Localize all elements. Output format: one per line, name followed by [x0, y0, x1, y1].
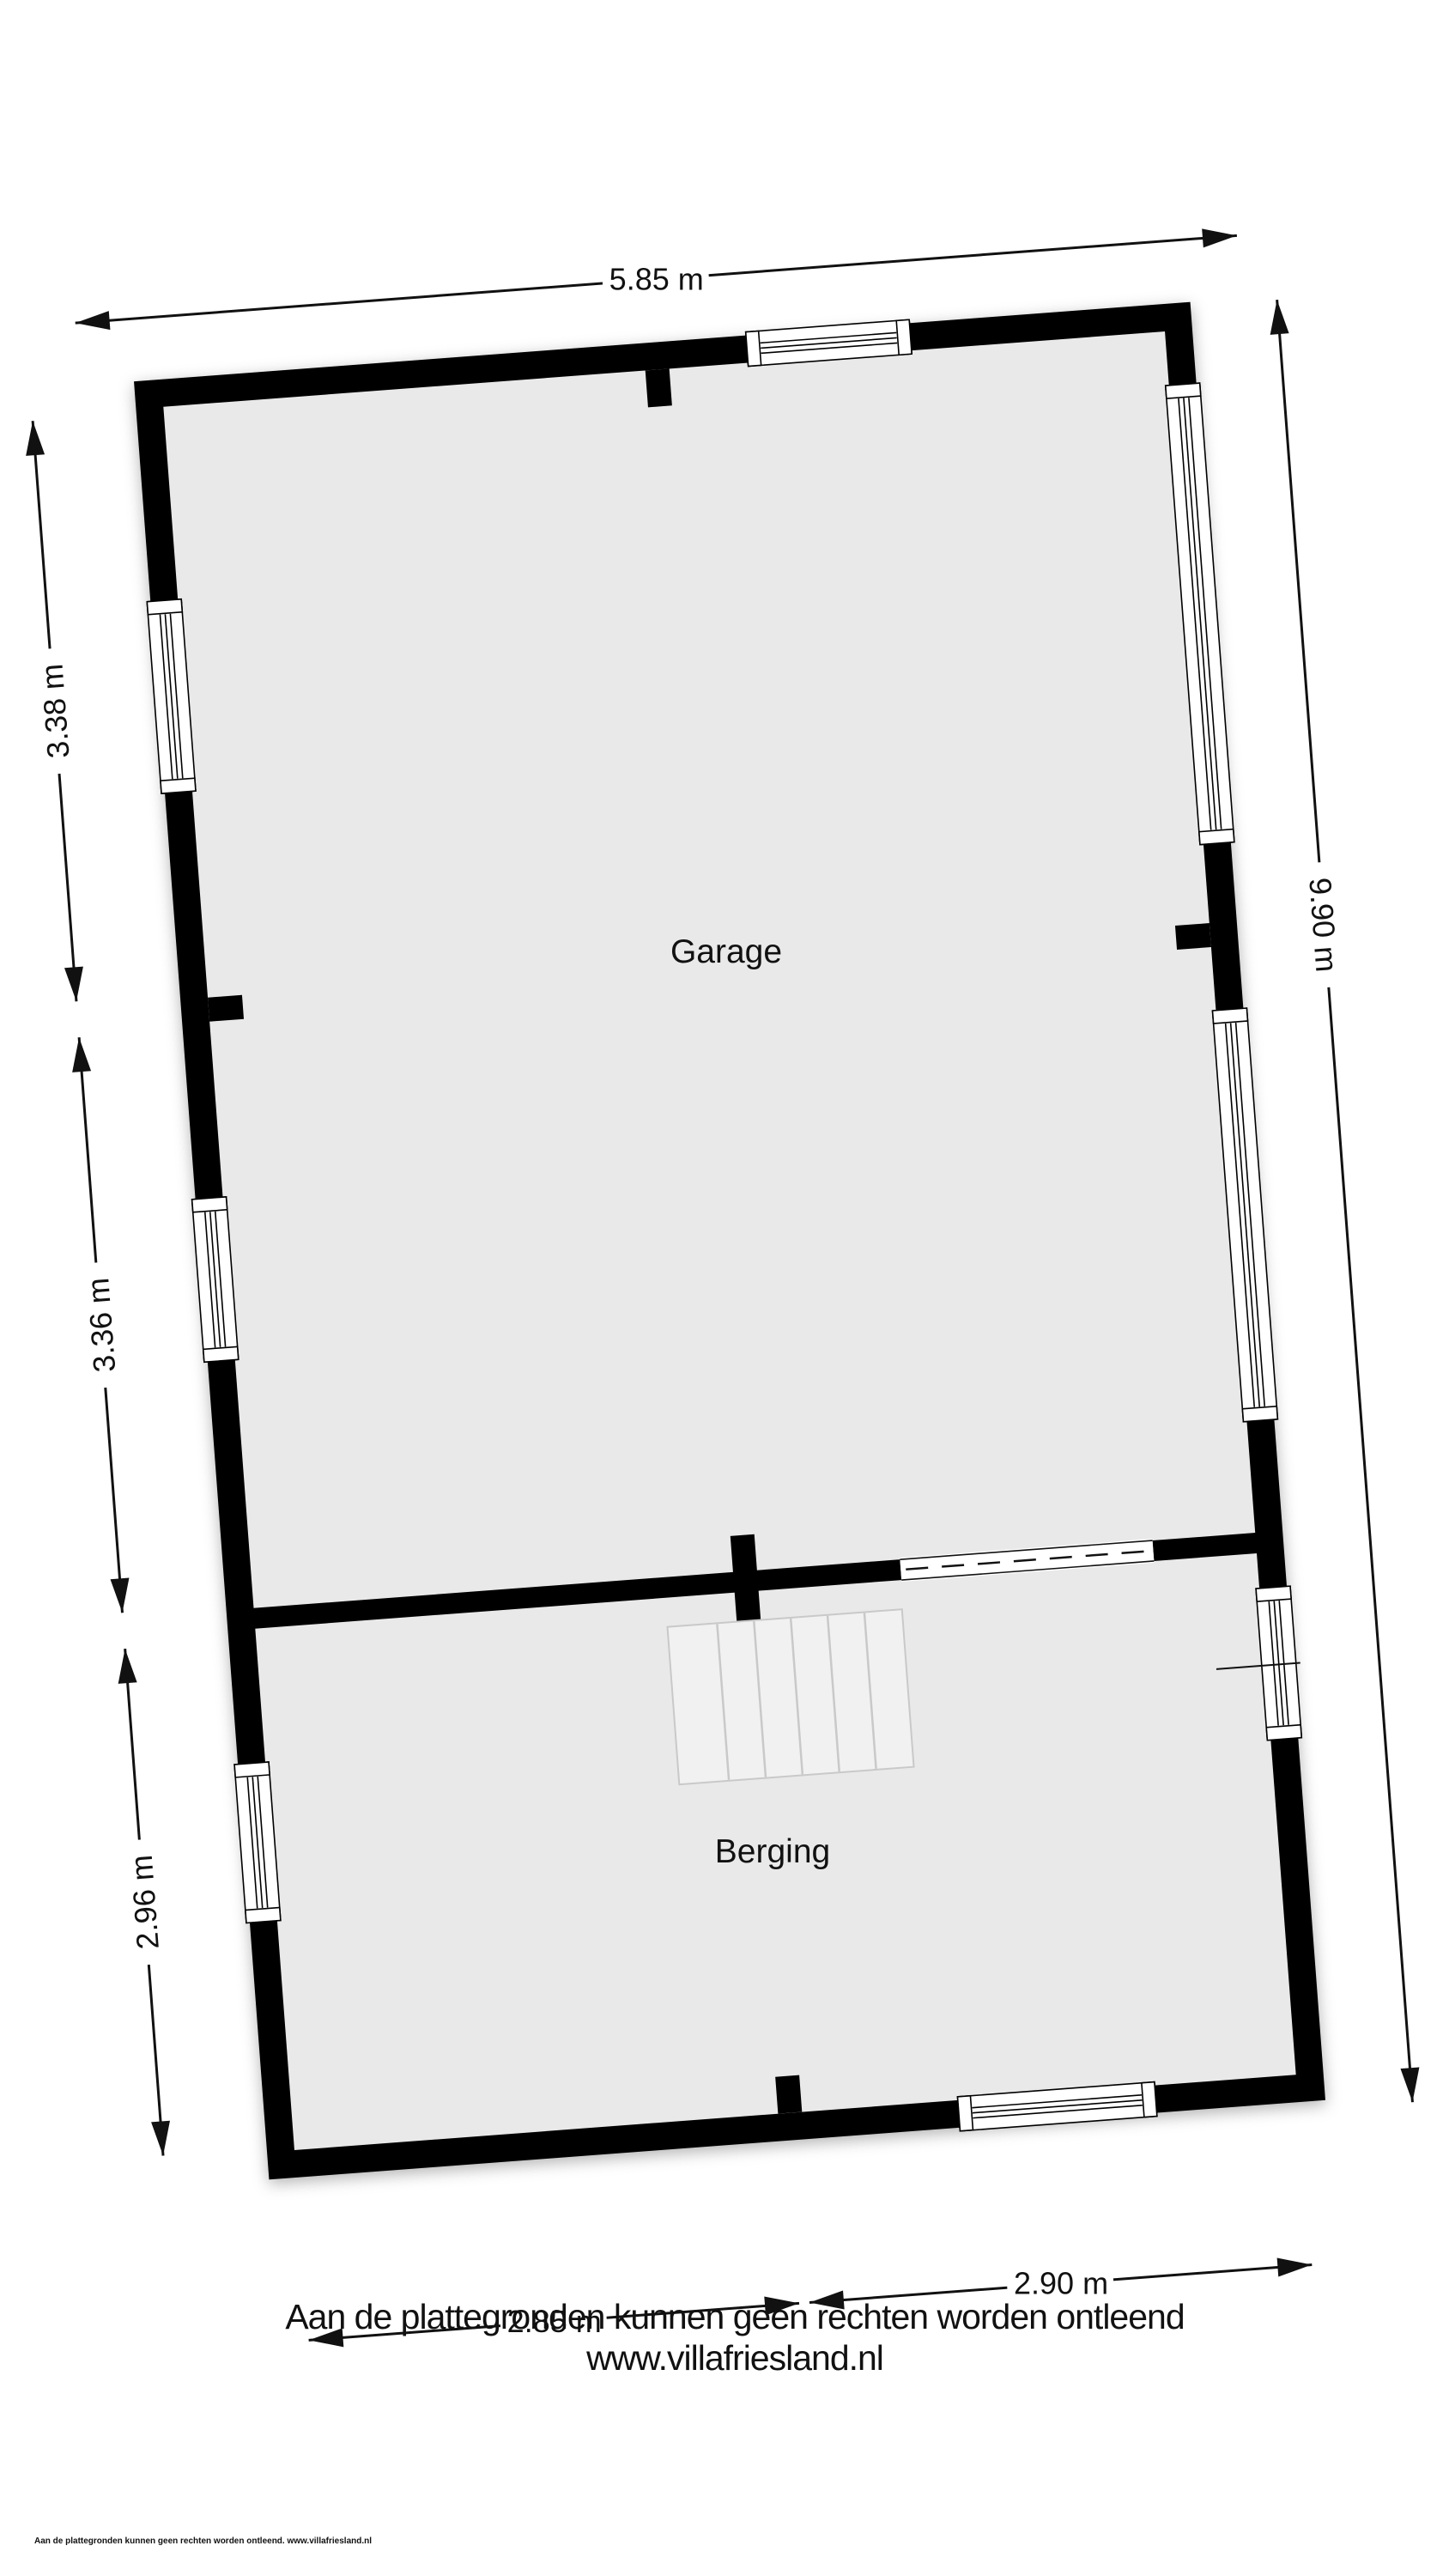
interior-floor — [163, 331, 1295, 2150]
floorplan-canvas: 5.85 m 3.38 m 3.36 m 2.96 m — [0, 0, 1449, 2576]
wall-stub-top — [646, 368, 672, 407]
dim-label-left-upper: 3.38 m — [33, 663, 76, 760]
room-label-berging: Berging — [715, 1833, 830, 1870]
dim-label-right: 9.90 m — [1302, 877, 1344, 974]
stairs — [668, 1609, 914, 1784]
dim-label-bottom-right: 2.90 m — [1014, 2266, 1108, 2301]
fine-print: Aan de plattegronden kunnen geen rechten… — [34, 2537, 372, 2546]
dim-label-left-lower: 2.96 m — [124, 1854, 166, 1951]
dim-label-left-middle: 3.36 m — [80, 1277, 122, 1374]
footer-website: www.villafriesland.nl — [585, 2338, 883, 2378]
wall-stub-left — [208, 995, 244, 1022]
footer-disclaimer: Aan de plattegronden kunnen geen rechten… — [285, 2297, 1184, 2336]
room-label-garage: Garage — [670, 933, 782, 970]
wall-stub-bottom — [775, 2075, 802, 2114]
wall-stub-right — [1175, 923, 1211, 950]
dim-label-top: 5.85 m — [609, 261, 704, 296]
